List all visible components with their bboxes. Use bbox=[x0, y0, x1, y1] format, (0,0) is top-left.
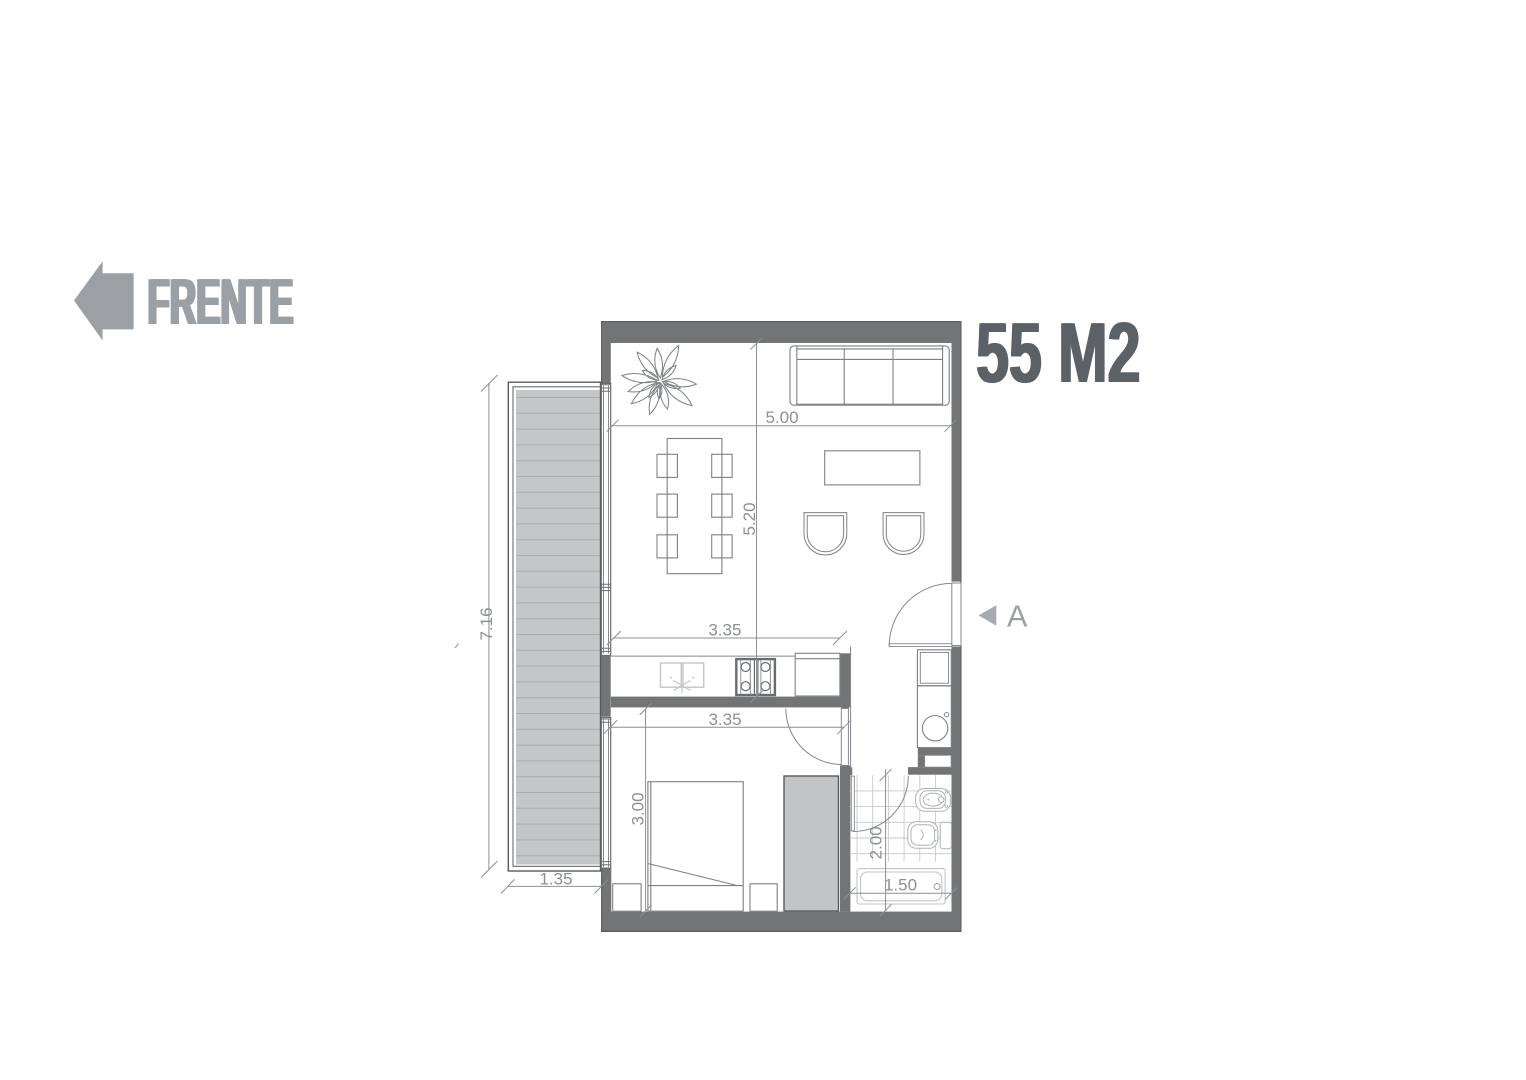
svg-text:A: A bbox=[1007, 600, 1028, 634]
svg-text:5.20: 5.20 bbox=[740, 502, 759, 535]
svg-text:3.35: 3.35 bbox=[708, 621, 741, 640]
svg-text:1.35: 1.35 bbox=[539, 870, 572, 889]
svg-text:3.00: 3.00 bbox=[629, 792, 648, 825]
svg-text:2.00: 2.00 bbox=[867, 826, 886, 859]
svg-text:7.16: 7.16 bbox=[477, 607, 496, 640]
svg-text:FRENTE: FRENTE bbox=[149, 266, 295, 339]
svg-text:55 M2: 55 M2 bbox=[977, 305, 1141, 400]
svg-text:5.00: 5.00 bbox=[765, 408, 798, 427]
svg-text:3.35: 3.35 bbox=[708, 710, 741, 729]
svg-text:1.50: 1.50 bbox=[884, 876, 917, 895]
